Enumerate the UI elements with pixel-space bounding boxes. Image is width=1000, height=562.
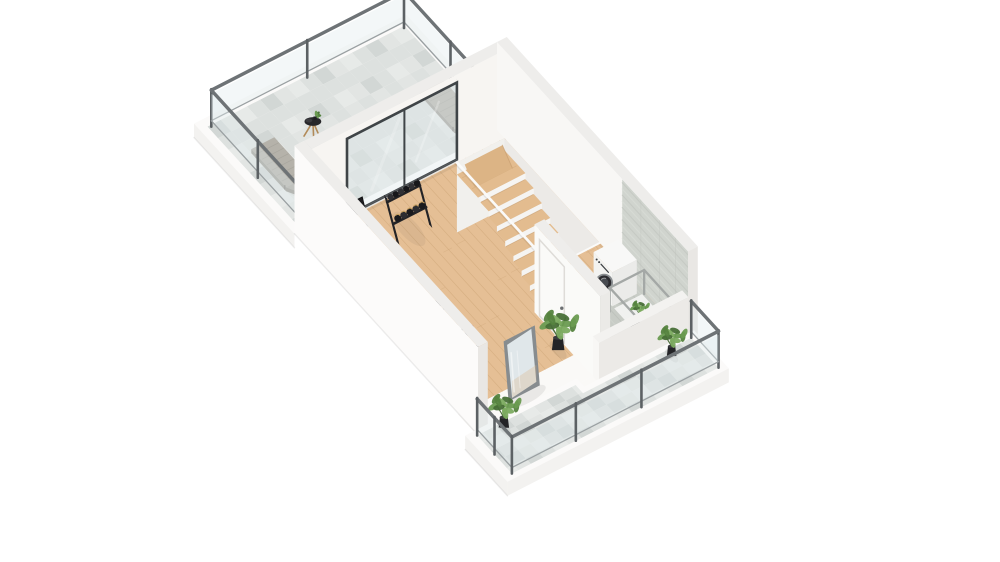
floorplan-render [0, 0, 1000, 562]
floorplan-canvas [0, 0, 1000, 562]
door-handle [560, 307, 563, 310]
